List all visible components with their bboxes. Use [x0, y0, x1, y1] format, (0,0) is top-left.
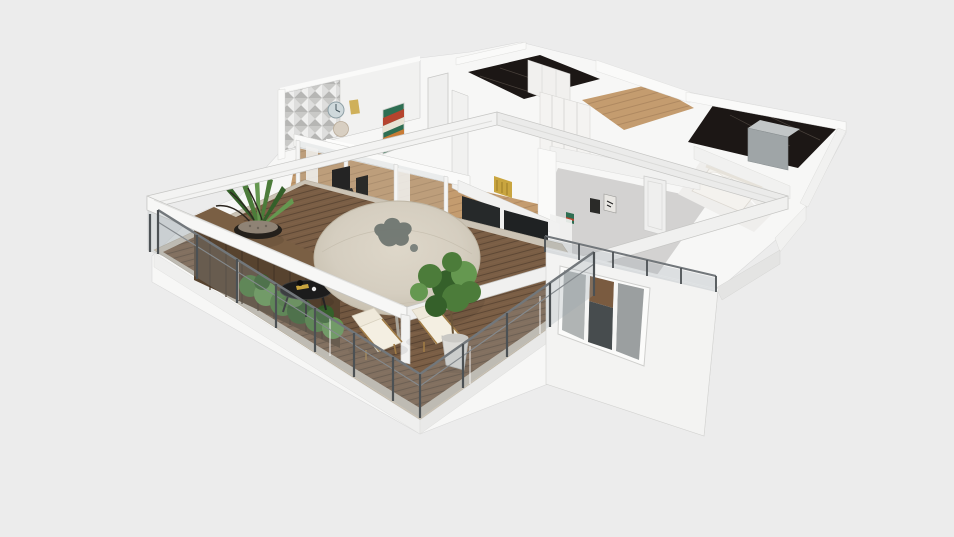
cup [312, 287, 316, 291]
window-pane-mid [588, 301, 613, 350]
kettle [297, 280, 303, 286]
render-canvas [0, 0, 954, 537]
floorplan-3d-viewport[interactable] [0, 0, 954, 537]
pergola-post [401, 314, 410, 364]
window-pane-right [616, 283, 644, 360]
wall-end-cap [278, 89, 285, 160]
ornament-blob [410, 244, 418, 252]
bedroom-door [644, 176, 666, 236]
round-mirror [334, 122, 349, 137]
